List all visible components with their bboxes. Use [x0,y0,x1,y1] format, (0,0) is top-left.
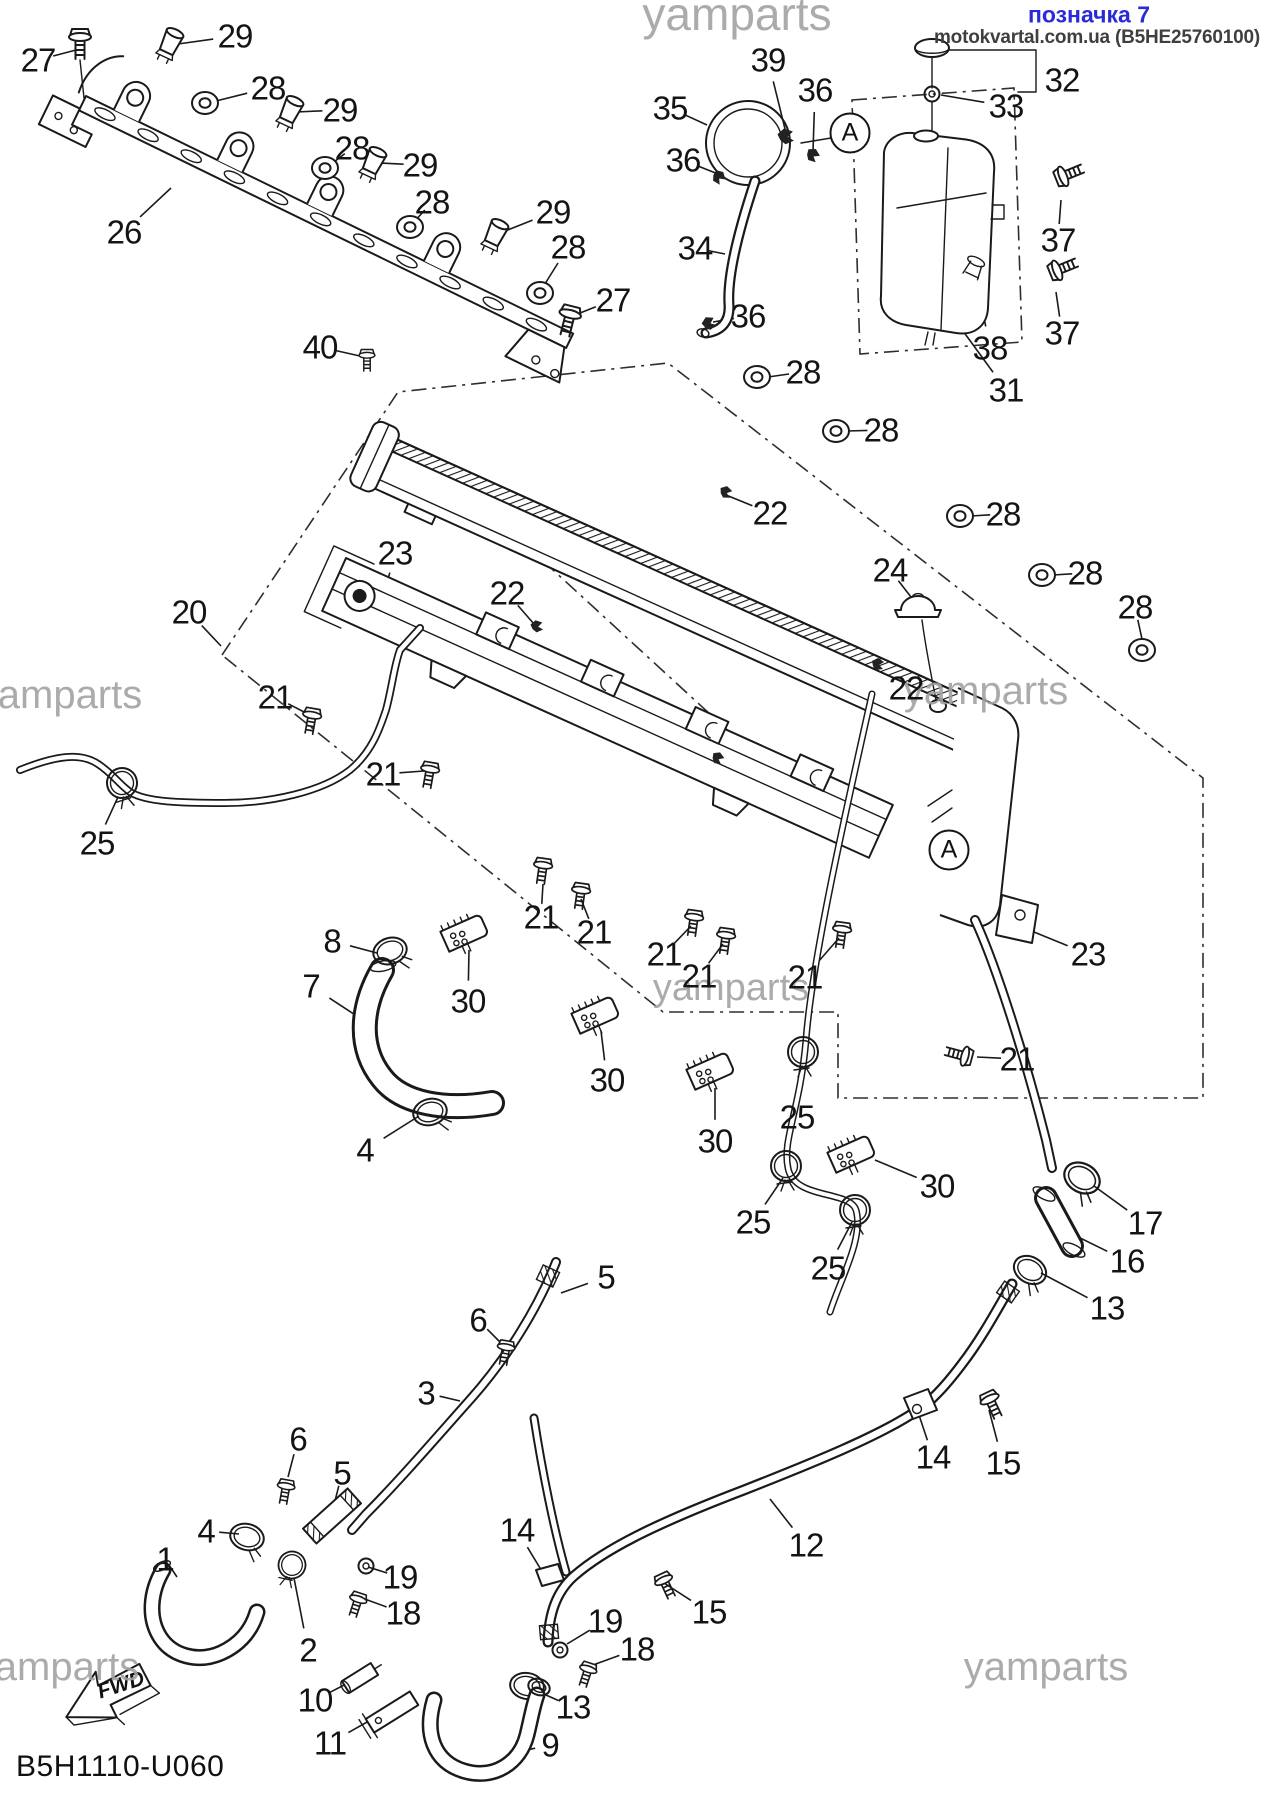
part-number-label: 13 [556,1691,591,1724]
part-number-label: 36 [798,74,833,107]
part-number-label: 29 [403,149,438,182]
part-number-label: 4 [197,1515,214,1548]
part-number-label: 21 [788,961,823,994]
part-number-label: 38 [973,332,1008,365]
leader-line [487,1329,501,1343]
leader-line [765,1178,783,1204]
part-number-label: 36 [731,300,766,333]
leader-line [53,50,76,56]
part-number-label: 18 [620,1633,655,1666]
part-number-label: 23 [378,537,413,570]
part-number-label: 25 [811,1252,846,1285]
part-number-label: 30 [920,1170,955,1203]
leader-line [216,93,247,101]
part-number-label: 21 [682,960,717,993]
part-number-label: 29 [323,94,358,127]
leader-line [336,351,360,356]
part-number-label: 28 [1118,591,1153,624]
part-number-label: 6 [469,1304,486,1337]
fitting-10-drawing [339,1659,385,1695]
part-number-label: 28 [415,186,450,219]
leader-line [178,39,213,44]
yamparts-watermark: yamparts [642,0,831,37]
part-number-label: 2 [299,1634,316,1667]
part-number-label: 37 [1045,317,1080,350]
joint-11-drawing [357,1686,421,1740]
leader-line [726,495,752,506]
part-number-label: 36 [666,144,701,177]
yamparts-watermark: yamparts [0,675,142,715]
leader-line [440,1396,460,1401]
part-number-label: 28 [864,414,899,447]
part-number-label: 10 [298,1684,333,1717]
yamparts-watermark: yamparts [0,1647,139,1687]
radiator-tank-right-drawing [928,688,1052,1168]
part-number-label: 20 [172,596,207,629]
part-number-label: 3 [417,1377,434,1410]
leader-line [685,115,707,125]
part-number-label: 30 [698,1125,733,1158]
pipe-joint-5-drawing [303,1488,361,1543]
source-watermark: motokvartal.com.ua (B5HE25760100) [934,27,1260,49]
part-number-label: 29 [536,196,571,229]
leader-line [875,1160,917,1177]
reservoir-tank-drawing [881,39,1036,345]
part-number-label: 16 [1110,1245,1145,1278]
part-number-label: 27 [596,284,631,317]
part-number-label: 21 [366,758,401,791]
part-number-label: 4 [356,1134,373,1167]
yamparts-watermark: yamparts [964,1647,1129,1687]
part-number-label: 30 [590,1064,625,1097]
leader-line [294,1578,304,1628]
leader-line [288,1454,294,1477]
yamparts-watermark: yamparts [904,671,1069,711]
part-number-label: 24 [873,554,908,587]
leader-line [1034,932,1068,946]
part-number-label: 25 [80,827,115,860]
part-number-label: 28 [1068,557,1103,590]
part-number-label: 1 [156,1543,173,1576]
part-number-label: 18 [386,1597,421,1630]
leader-line [219,1532,239,1534]
part-number-label: 33 [989,90,1024,123]
part-number-label: 15 [986,1447,1021,1480]
leader-line [1094,1186,1127,1210]
part-number-label: 35 [653,92,688,125]
part-number-label: 25 [780,1101,815,1134]
part-number-label: 21 [258,681,293,714]
leader-line [838,1222,852,1250]
page-tag: позначка 7 [1028,2,1150,29]
leader-line [1059,200,1061,224]
leader-line [140,188,171,217]
part-number-label: 25 [736,1206,771,1239]
part-number-label: 39 [751,44,786,77]
leader-line [941,95,984,102]
leader-line [399,771,424,773]
part-number-label: 11 [314,1727,346,1760]
part-number-label: 22 [490,577,525,610]
parts-diagram-page: FWD позначка 7 motokvartal.com.ua (B5HE2… [0,0,1265,1800]
part-number-label: 26 [107,216,142,249]
part-number-label: 34 [678,232,713,265]
hose-9-drawing [430,1676,552,1774]
part-number-label: 17 [1128,1207,1163,1240]
leader-line [593,1655,619,1665]
part-number-label: 5 [333,1457,350,1490]
part-number-label: 28 [986,498,1021,531]
part-number-label: 27 [21,44,56,77]
diagram-art: FWD [0,0,1265,1800]
radiator-cap-drawing [895,594,941,617]
leader-line [919,1415,927,1440]
leader-line [567,1630,590,1644]
leader-line [468,950,469,981]
part-number-label: 19 [588,1605,623,1638]
part-number-label: 19 [383,1561,418,1594]
leader-line [773,81,786,133]
yamparts-watermark: yamparts [653,969,809,1007]
leader-line [977,1057,1001,1058]
part-number-label: 23 [1071,938,1106,971]
water-pipe-3-drawing [352,1262,560,1530]
part-number-label: 6 [289,1423,306,1456]
part-number-label: 7 [302,970,319,1003]
part-number-label: 21 [647,938,682,971]
circled-view-marker: A [830,113,871,154]
hose-16-drawing [1031,1184,1087,1260]
circled-view-marker: A [929,830,970,871]
part-number-label: 9 [541,1729,558,1762]
part-number-label: 22 [753,497,788,530]
part-number-label: 37 [1041,224,1076,257]
part-number-label: 32 [1045,64,1080,97]
part-number-label: 28 [251,72,286,105]
part-number-label: 28 [786,356,821,389]
leader-line [1041,1273,1088,1298]
part-number-label: 21 [577,916,612,949]
part-number-label: 21 [524,901,559,934]
leader-line [105,797,118,825]
part-number-label: 28 [335,132,370,165]
part-number-label: 21 [1000,1043,1035,1076]
part-number-label: 13 [1090,1292,1125,1325]
part-number-label: 5 [597,1261,614,1294]
leader-line [770,1499,792,1528]
leader-line [1056,292,1060,317]
part-number-label: 40 [303,331,338,364]
part-number-label: 12 [789,1529,824,1562]
drawing-code: B5H1110-U060 [16,1750,224,1784]
part-number-label: 8 [323,925,340,958]
part-number-label: 31 [989,374,1024,407]
leader-line [813,112,814,151]
radiator-hose-7-drawing [365,958,492,1106]
leader-line [561,1283,588,1293]
part-number-label: 29 [218,20,253,53]
part-number-label: 30 [451,985,486,1018]
part-number-label: 14 [916,1441,951,1474]
part-number-label: 22 [889,672,924,705]
leader-line [601,1031,605,1060]
part-number-label: 14 [500,1514,535,1547]
part-number-label: 28 [551,231,586,264]
part-number-label: 15 [692,1596,727,1629]
